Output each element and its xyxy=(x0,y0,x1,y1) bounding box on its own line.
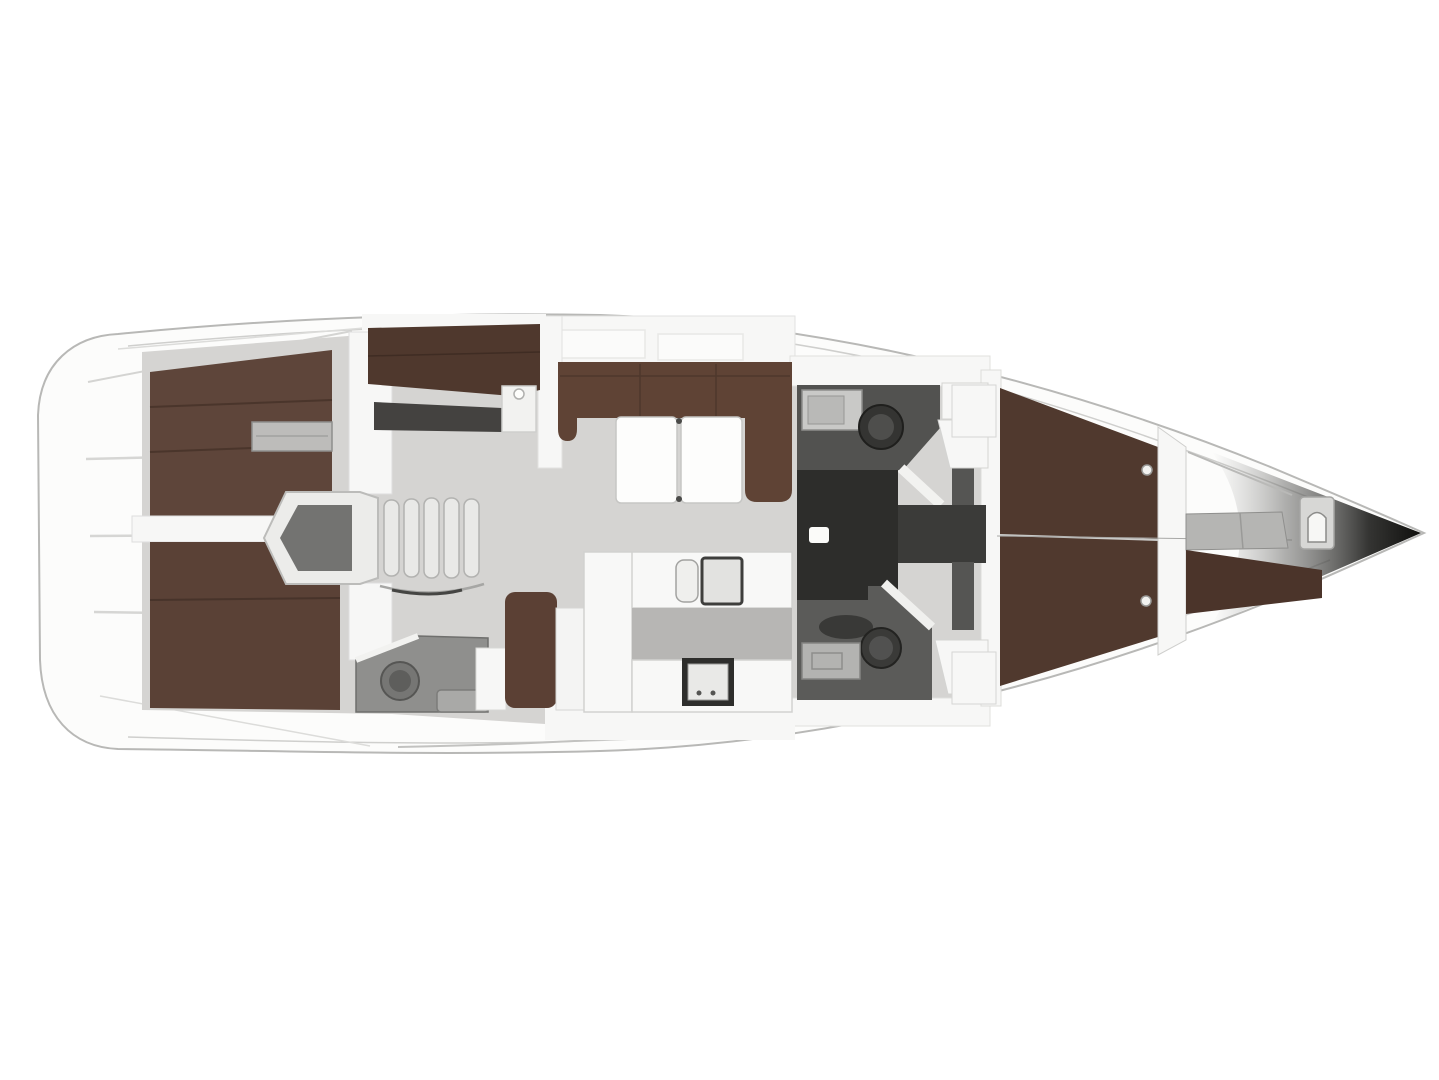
fwd-cabin-fwd-bulkhead xyxy=(1158,427,1186,655)
corridor-doorway xyxy=(898,505,986,563)
stair-tread-2 xyxy=(404,499,419,577)
stair-tread-1 xyxy=(384,500,399,576)
table-hinge-bottom xyxy=(676,496,682,502)
galley-floor xyxy=(632,608,792,660)
nav-locker xyxy=(476,648,506,710)
galley-counter-side xyxy=(584,552,632,712)
deck-hatch-2 xyxy=(658,334,743,360)
bow-wc-bowl xyxy=(1308,513,1326,543)
nav-bench xyxy=(505,592,557,708)
yacht-floor-plan xyxy=(0,0,1439,1080)
fwd-berth-knob-2 xyxy=(1141,596,1151,606)
stair-tread-4 xyxy=(444,498,459,578)
wardrobe-lower xyxy=(952,562,974,630)
bunk-cabinet-knob xyxy=(514,389,524,399)
wall-above-heads xyxy=(790,356,990,386)
bunk-berth xyxy=(368,324,540,396)
galley-stove-top xyxy=(688,664,728,700)
bow-counter xyxy=(1186,512,1288,550)
fwd-bedside-lower xyxy=(952,652,996,704)
stair-tread-3 xyxy=(424,498,439,578)
head-lower-washstand xyxy=(802,643,860,679)
corridor-door-handle xyxy=(809,527,829,543)
head-upper-basin xyxy=(808,396,844,424)
salon-table-leaf-left xyxy=(616,417,677,503)
stair-tread-5 xyxy=(464,499,479,577)
stove-knob-1 xyxy=(697,691,702,696)
head-upper-toilet-seat xyxy=(868,414,894,440)
head-lower-toilet-seat xyxy=(869,636,893,660)
fwd-bedside-upper xyxy=(952,385,996,437)
deck-hatch-1 xyxy=(560,330,645,358)
aft-head-toilet-seat xyxy=(389,670,411,692)
floor-plan-svg xyxy=(0,0,1439,1080)
stove-knob-2 xyxy=(711,691,716,696)
fwd-berth-knob-1 xyxy=(1142,465,1152,475)
table-hinge-top xyxy=(676,418,682,424)
salon-table-leaf-right xyxy=(681,417,742,503)
galley-sink-small xyxy=(676,560,698,602)
galley-sink-large xyxy=(702,558,742,604)
